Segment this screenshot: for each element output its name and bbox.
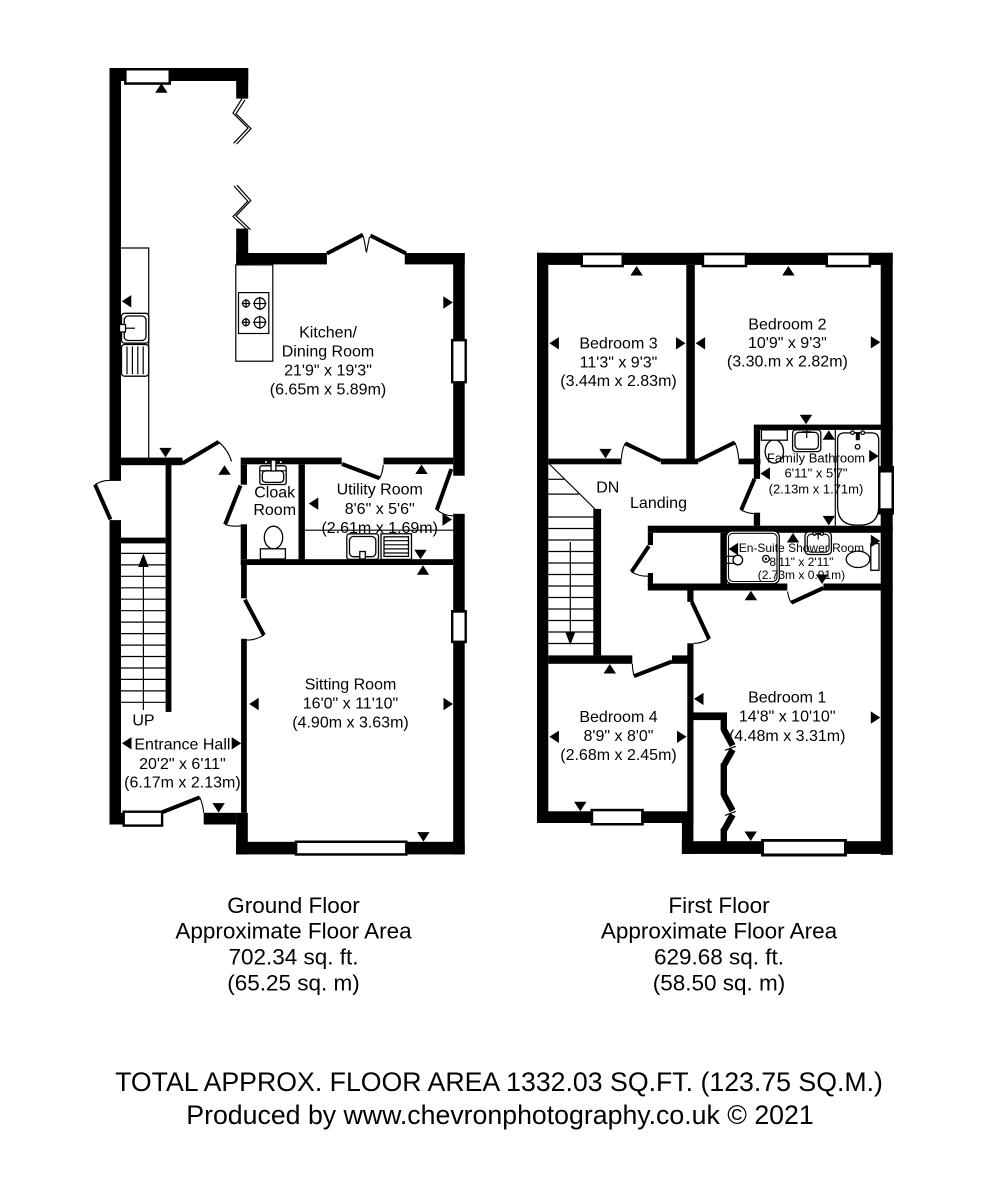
svg-text:First Floor: First Floor <box>668 893 770 918</box>
svg-text:(6.65m x 5.89m): (6.65m x 5.89m) <box>270 382 386 399</box>
svg-text:(3.30.m x 2.82m): (3.30.m x 2.82m) <box>727 354 848 371</box>
svg-text:Bedroom 3: Bedroom 3 <box>579 336 657 353</box>
svg-text:Cloak: Cloak <box>254 484 296 501</box>
svg-text:(2.68m x 2.45m): (2.68m x 2.45m) <box>560 747 676 764</box>
svg-text:Bedroom 1: Bedroom 1 <box>748 690 826 707</box>
svg-text:21'9" x 19'3": 21'9" x 19'3" <box>284 363 372 380</box>
svg-text:Entrance Hall: Entrance Hall <box>134 736 230 753</box>
svg-text:Kitchen/: Kitchen/ <box>299 325 357 342</box>
svg-text:16'0" x 11'10": 16'0" x 11'10" <box>303 696 398 713</box>
svg-text:(4.90m x 3.63m): (4.90m x 3.63m) <box>292 715 408 732</box>
svg-text:14'8" x 10'10": 14'8" x 10'10" <box>739 709 836 726</box>
svg-text:Landing: Landing <box>630 495 687 512</box>
svg-text:20'2" x 6'11": 20'2" x 6'11" <box>139 756 226 773</box>
svg-text:(4.48m x 3.31m): (4.48m x 3.31m) <box>729 728 845 745</box>
svg-text:Produced by www.chevronphotogr: Produced by www.chevronphotography.co.uk… <box>186 1100 813 1130</box>
svg-text:Family Bathroom: Family Bathroom <box>767 451 865 466</box>
svg-text:8'9" x 8'0": 8'9" x 8'0" <box>584 728 654 745</box>
svg-text:Ground Floor: Ground Floor <box>227 893 360 918</box>
svg-text:En-Suite Shower Room: En-Suite Shower Room <box>739 541 864 555</box>
svg-text:(65.25 sq. m): (65.25 sq. m) <box>227 971 360 996</box>
svg-text:Approximate Floor Area: Approximate Floor Area <box>175 919 412 944</box>
svg-text:(58.50 sq. m): (58.50 sq. m) <box>653 971 786 996</box>
svg-text:Sitting Room: Sitting Room <box>305 677 397 694</box>
svg-text:Bedroom 2: Bedroom 2 <box>748 316 826 333</box>
svg-text:Utility Room: Utility Room <box>337 482 423 499</box>
svg-text:629.68 sq. ft.: 629.68 sq. ft. <box>654 945 784 970</box>
svg-text:6'11" x 5'7": 6'11" x 5'7" <box>784 466 847 481</box>
svg-text:702.34 sq. ft.: 702.34 sq. ft. <box>228 945 358 970</box>
svg-text:(2.61m x 1.69m): (2.61m x 1.69m) <box>321 520 437 537</box>
svg-text:(6.17m x 2.13m): (6.17m x 2.13m) <box>124 775 240 792</box>
svg-text:DN: DN <box>596 480 619 497</box>
svg-text:UP: UP <box>132 713 154 730</box>
svg-text:Dining Room: Dining Room <box>282 344 374 361</box>
svg-text:(2.73m x 0.91m): (2.73m x 0.91m) <box>758 568 845 582</box>
svg-text:TOTAL APPROX. FLOOR AREA 1332.: TOTAL APPROX. FLOOR AREA 1332.03 SQ.FT. … <box>115 1067 883 1097</box>
svg-text:Approximate Floor Area: Approximate Floor Area <box>601 919 838 944</box>
svg-text:8'11" x 2'11": 8'11" x 2'11" <box>769 555 833 569</box>
svg-text:(2.13m x 1.71m): (2.13m x 1.71m) <box>769 482 864 497</box>
svg-text:(3.44m x 2.83m): (3.44m x 2.83m) <box>560 373 676 390</box>
svg-text:10'9" x 9'3": 10'9" x 9'3" <box>748 335 827 352</box>
svg-text:Bedroom 4: Bedroom 4 <box>579 709 657 726</box>
svg-text:8'6" x 5'6": 8'6" x 5'6" <box>345 501 415 518</box>
svg-text:Room: Room <box>253 502 296 519</box>
svg-text:11'3" x 9'3": 11'3" x 9'3" <box>580 354 658 371</box>
